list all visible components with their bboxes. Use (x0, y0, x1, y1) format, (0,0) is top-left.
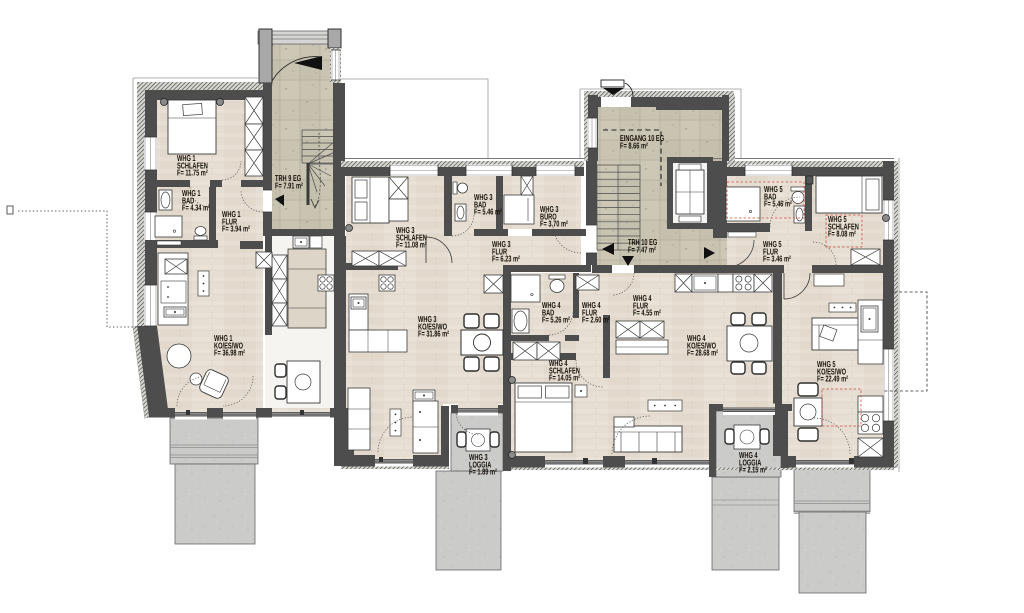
svg-text:TRH 9 EGF= 7.91 m²: TRH 9 EGF= 7.91 m² (275, 173, 303, 190)
svg-text:TRH 10 EGF= 7.47 m²: TRH 10 EGF= 7.47 m² (628, 237, 658, 254)
